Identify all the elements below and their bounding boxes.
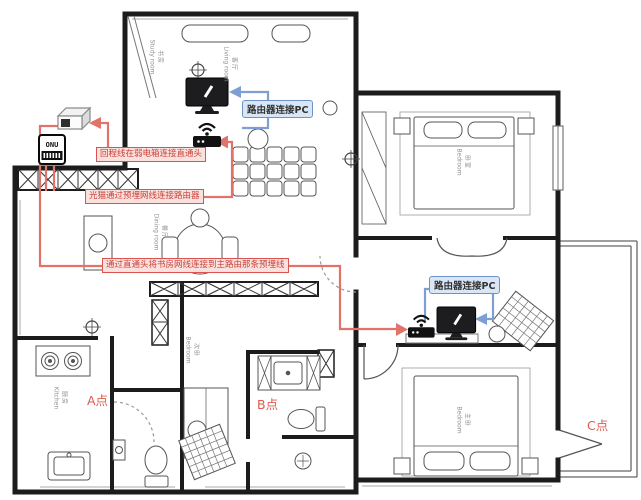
toilet-1	[145, 446, 168, 487]
bedroom-window	[553, 126, 563, 190]
hatch-closet-left	[152, 300, 168, 345]
hatch-wardrobe-strip	[150, 282, 318, 296]
room-label-bedroom-small-zh: 次卧	[192, 336, 200, 363]
room-label-study-zh: 书房	[156, 40, 164, 75]
room-label-bedroom-main-en: Bedroom	[456, 406, 464, 433]
room-label-bedroom-top: 卧室 Bedroom	[456, 148, 471, 175]
room-label-bedroom-main: 主卧 Bedroom	[456, 406, 471, 433]
room-label-living: 客厅 Living room	[223, 46, 238, 81]
stool	[489, 326, 505, 342]
top-desks	[182, 25, 310, 42]
sofa	[233, 147, 316, 196]
point-a-label: A点	[87, 390, 108, 409]
kitchen-sink	[48, 452, 90, 480]
annotation-modem-label: 光猫通过预埋网线连接路由器	[85, 189, 204, 204]
room-label-kitchen-zh: 厨房	[60, 387, 68, 410]
router-pc-label-bottom: 路由器连接PC	[429, 276, 500, 294]
rj45-coupler-icon	[58, 108, 90, 129]
room-label-dining-en: Dining room	[153, 214, 161, 251]
onu-label: ONU	[46, 141, 59, 149]
shower-drain	[295, 453, 311, 469]
wifi-router-icon	[193, 124, 221, 147]
rug-router-room	[492, 291, 553, 350]
room-label-dining-zh: 餐厅	[160, 214, 168, 251]
room-label-bedroom-small-en: Bedroom	[185, 336, 193, 363]
side-table	[248, 129, 268, 149]
onu-icon: ONU	[39, 135, 65, 164]
room-label-kitchen: 厨房 Kitchen	[53, 387, 68, 410]
room-label-bedroom-small: 次卧 Bedroom	[185, 336, 200, 363]
room-label-kitchen-en: Kitchen	[53, 387, 61, 410]
side-table-small	[323, 101, 337, 115]
room-label-living-zh: 客厅	[230, 46, 238, 81]
point-b-label: B点	[257, 394, 278, 413]
floorplan-drawing: ONU	[0, 0, 641, 500]
wifi-router-icon-2	[408, 316, 435, 338]
router-pc-label-top: 路由器连接PC	[242, 100, 313, 118]
room-label-study-en: Study room	[149, 40, 157, 75]
bathB-vanity	[258, 356, 320, 390]
room-label-bedroom-top-en: Bedroom	[456, 148, 464, 175]
floorplan-canvas: ONU 回程线在弱电箱连接直通头 光猫通过预埋网线连接路由器	[0, 0, 641, 500]
annotation-return-line-label: 回程线在弱电箱连接直通头	[96, 147, 206, 162]
toilet-2	[288, 407, 325, 431]
room-label-dining: 餐厅 Dining room	[153, 214, 168, 251]
balcony-walls	[558, 241, 637, 477]
wardrobe-top-bedroom	[362, 112, 386, 224]
annotation-study-cable-label: 通过直通头将书房网线连接到主路由那条预埋线	[102, 258, 289, 273]
pc-monitor-icon	[186, 78, 228, 114]
room-label-living-en: Living room	[223, 46, 231, 81]
room-label-bedroom-top-zh: 卧室	[463, 148, 471, 175]
room-label-study: 书房 Study room	[149, 40, 164, 75]
bath1-sink	[113, 440, 125, 460]
hatch-corridor	[18, 169, 138, 190]
balcony-door	[559, 430, 602, 458]
room-label-bedroom-main-zh: 主卧	[463, 406, 471, 433]
point-c-label: C点	[587, 415, 608, 434]
stove	[36, 346, 90, 376]
